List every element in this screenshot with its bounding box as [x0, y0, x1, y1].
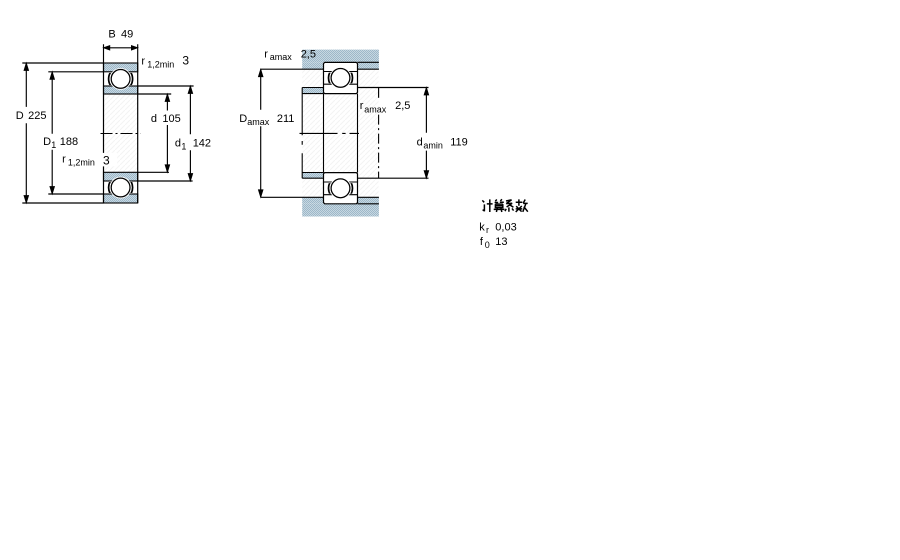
svg-text:r: r	[486, 225, 489, 235]
svg-text:13: 13	[495, 236, 507, 248]
svg-text:amin: amin	[423, 140, 443, 150]
svg-text:D: D	[16, 110, 24, 122]
svg-text:D: D	[43, 136, 51, 148]
svg-text:1: 1	[51, 140, 56, 150]
svg-text:0: 0	[485, 240, 490, 250]
svg-text:amax: amax	[247, 117, 270, 127]
svg-text:d: d	[175, 138, 181, 150]
svg-text:3: 3	[103, 153, 110, 167]
svg-text:1,2min: 1,2min	[68, 158, 95, 168]
svg-text:119: 119	[450, 137, 468, 149]
svg-text:2,5: 2,5	[395, 100, 410, 112]
svg-text:amax: amax	[364, 104, 387, 114]
svg-text:k: k	[479, 222, 485, 234]
svg-text:r: r	[264, 49, 268, 61]
svg-text:225: 225	[28, 110, 46, 122]
svg-text:188: 188	[60, 136, 78, 148]
svg-text:1,2min: 1,2min	[147, 59, 174, 69]
svg-text:D: D	[239, 113, 247, 125]
svg-text:d: d	[417, 137, 423, 149]
svg-text:amax: amax	[270, 52, 293, 62]
svg-text:B: B	[108, 29, 115, 41]
svg-text:r: r	[62, 154, 66, 166]
svg-text:0,03: 0,03	[495, 222, 516, 234]
svg-text:105: 105	[162, 113, 180, 125]
svg-text:142: 142	[193, 138, 211, 150]
svg-text:211: 211	[277, 113, 295, 125]
svg-text:49: 49	[121, 29, 133, 41]
svg-text:r: r	[141, 56, 145, 68]
svg-text:1: 1	[181, 142, 186, 152]
svg-text:3: 3	[182, 54, 189, 68]
svg-text:2,5: 2,5	[301, 49, 316, 61]
svg-text:d: d	[151, 113, 157, 125]
svg-text:r: r	[360, 100, 364, 112]
